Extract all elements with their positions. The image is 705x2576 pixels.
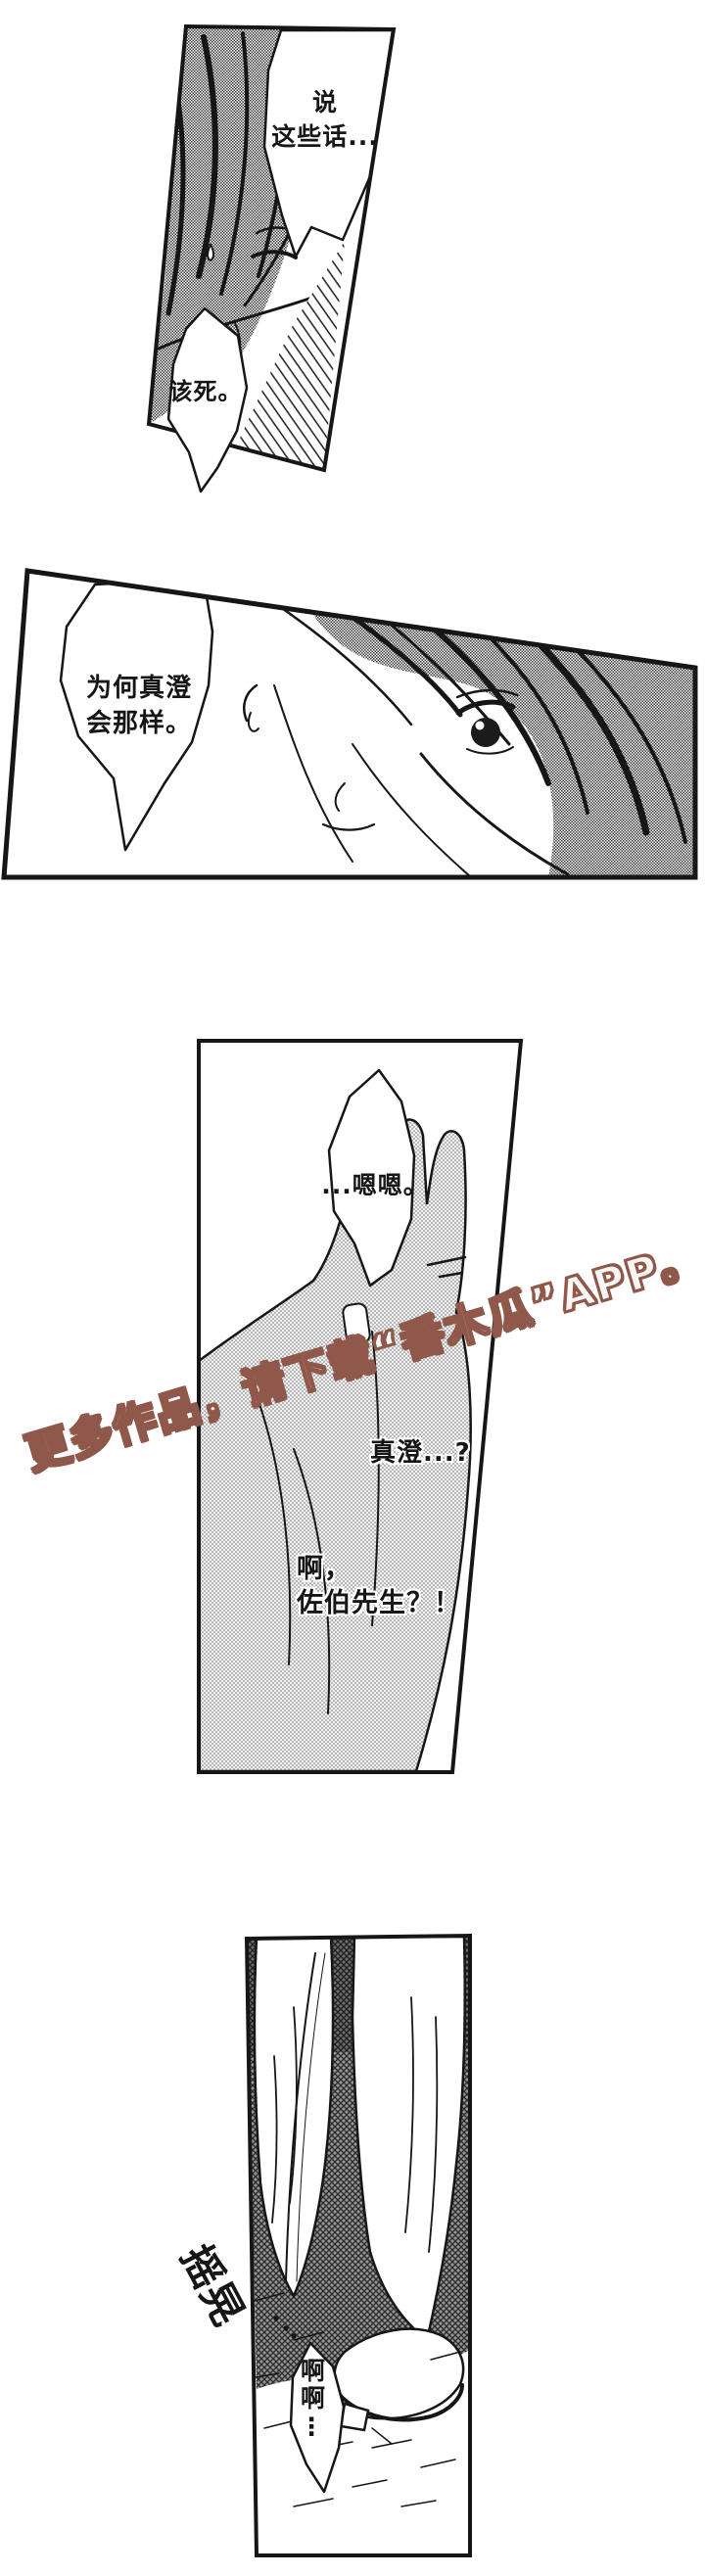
sweat-drop — [208, 245, 213, 260]
speech-text-gasp: 啊啊⋮ — [294, 2358, 328, 2485]
speech-text-shout: 说 这些话... — [257, 86, 394, 154]
caption-text-surprise: 啊， 佐伯先生？！ — [297, 1552, 461, 1620]
manga-page: 说 这些话... 该死。 为何真澄 会那样。 ...嗯嗯。 真澄...? 啊， … — [0, 0, 705, 2576]
speech-text-curse: 该死。 — [164, 376, 247, 408]
speech-text-reply: ...嗯嗯。 — [315, 1169, 435, 1203]
panel-4-art — [245, 1936, 470, 2555]
thought-text: 为何真澄 会那样。 — [76, 672, 202, 742]
caption-text-name: 真澄...? — [370, 1436, 471, 1472]
